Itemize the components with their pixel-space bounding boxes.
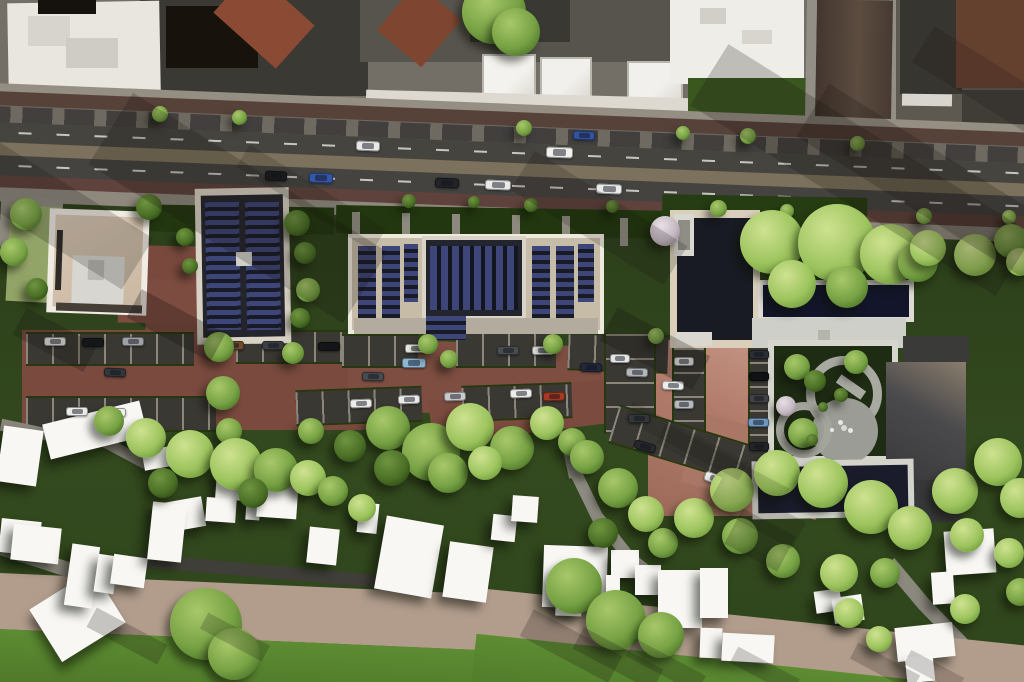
house xyxy=(110,554,148,588)
car xyxy=(626,368,648,378)
building3-terrace xyxy=(354,318,598,334)
car xyxy=(356,141,380,152)
tree xyxy=(238,478,268,508)
tree xyxy=(468,196,480,208)
tree xyxy=(402,194,416,208)
house xyxy=(306,527,340,566)
building3-solar xyxy=(404,244,418,302)
car xyxy=(104,367,126,377)
tree xyxy=(888,506,932,550)
tree xyxy=(648,528,678,558)
car xyxy=(309,173,333,184)
tree xyxy=(798,458,848,508)
tree xyxy=(834,388,848,402)
car xyxy=(66,407,88,416)
car xyxy=(318,342,340,351)
tree xyxy=(126,418,166,458)
car xyxy=(573,131,595,141)
car xyxy=(546,146,573,158)
garden-table xyxy=(841,425,847,431)
house xyxy=(205,497,237,523)
car xyxy=(444,392,466,402)
car xyxy=(749,442,769,451)
garden-furniture xyxy=(830,428,834,432)
house xyxy=(511,495,539,523)
tree xyxy=(440,350,458,368)
tree xyxy=(588,518,618,548)
tree xyxy=(290,308,310,328)
rooftop-unit xyxy=(66,38,118,68)
car xyxy=(262,341,284,350)
tree xyxy=(418,334,438,354)
tree xyxy=(374,450,410,486)
car xyxy=(122,337,144,346)
car xyxy=(350,399,372,409)
tree xyxy=(818,402,828,412)
car xyxy=(748,418,769,427)
tree xyxy=(94,406,124,436)
white-ledge xyxy=(902,94,952,107)
tree xyxy=(950,518,984,552)
tree xyxy=(932,468,978,514)
car xyxy=(402,358,426,368)
tree xyxy=(516,120,532,136)
site-plan-aerial-view xyxy=(0,0,1024,682)
tree xyxy=(334,430,366,462)
tree xyxy=(994,538,1024,568)
tree xyxy=(826,266,868,308)
tree xyxy=(676,126,690,140)
rooftop-opening xyxy=(38,0,96,14)
tree xyxy=(570,440,604,474)
house xyxy=(0,425,44,486)
tree xyxy=(776,396,796,416)
tree xyxy=(543,334,563,354)
house xyxy=(931,571,955,604)
tree xyxy=(806,434,818,446)
tree xyxy=(206,376,240,410)
house xyxy=(10,524,62,565)
tree xyxy=(282,342,304,364)
tree xyxy=(710,200,727,217)
tree xyxy=(298,418,324,444)
tree xyxy=(348,494,376,522)
rooftop-unit xyxy=(742,30,772,44)
tree xyxy=(166,430,214,478)
tree xyxy=(182,258,198,274)
house xyxy=(442,541,493,603)
car xyxy=(497,346,519,355)
tree xyxy=(628,496,664,532)
tree xyxy=(834,598,864,628)
tree xyxy=(428,453,468,493)
building3-solar xyxy=(578,244,594,302)
rooftop-unit xyxy=(28,16,70,46)
tree xyxy=(148,468,178,498)
car xyxy=(510,389,532,399)
car xyxy=(435,178,459,189)
house xyxy=(147,501,187,562)
tree xyxy=(492,8,540,56)
car xyxy=(749,372,769,381)
building3-solar xyxy=(556,246,574,318)
house xyxy=(700,568,728,618)
tree xyxy=(844,350,868,374)
building3-solar xyxy=(382,246,400,318)
car xyxy=(674,400,694,409)
tree xyxy=(26,278,48,300)
tree xyxy=(804,370,826,392)
car xyxy=(485,179,511,190)
tree xyxy=(468,446,502,480)
car xyxy=(362,372,384,382)
tree xyxy=(820,554,858,592)
car xyxy=(749,350,769,359)
tree xyxy=(870,558,900,588)
building3-center-solar xyxy=(430,246,518,310)
car xyxy=(543,392,565,402)
tree xyxy=(232,110,247,125)
tree xyxy=(0,238,28,266)
rooftop-unit xyxy=(700,8,726,24)
building7-upper xyxy=(903,336,969,364)
car xyxy=(398,395,420,405)
tree xyxy=(318,476,348,506)
tree xyxy=(768,260,816,308)
house xyxy=(699,628,722,659)
tree xyxy=(950,594,980,624)
building3-solar xyxy=(532,246,550,318)
car xyxy=(580,363,602,373)
tree xyxy=(176,228,194,246)
tree xyxy=(446,403,494,451)
car xyxy=(749,394,769,403)
garden-furniture xyxy=(848,428,853,433)
